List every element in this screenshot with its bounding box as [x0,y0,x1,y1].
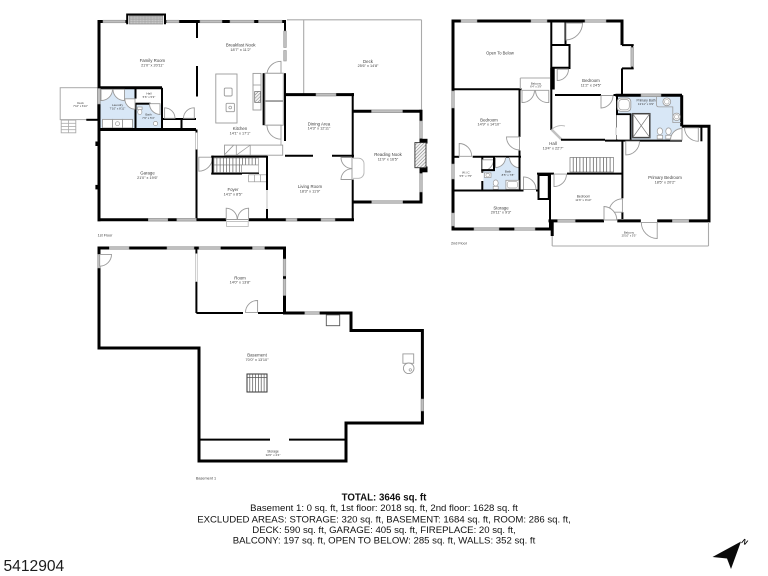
svg-text:7'10" x 8'11": 7'10" x 8'11" [110,107,126,111]
svg-text:BALCONY: 197 sq. ft, OPEN TO B: BALCONY: 197 sq. ft, OPEN TO BELOW: 285 … [233,536,536,547]
svg-text:13'11" x 9'9": 13'11" x 9'9" [638,102,654,106]
svg-text:Foyer: Foyer [227,187,239,192]
svg-text:5'6" x 5'3": 5'6" x 5'3" [143,95,156,99]
svg-text:21'0" x 19'6": 21'0" x 19'6" [137,176,158,180]
svg-text:20'11" x 9'3": 20'11" x 9'3" [491,211,512,215]
svg-text:14'3" x 12'11": 14'3" x 12'11" [308,127,331,131]
svg-text:25'6" x 14'8": 25'6" x 14'8" [358,64,379,68]
svg-text:1st Floor: 1st Floor [98,234,114,238]
svg-text:Basement 1: Basement 1 [196,476,216,480]
svg-text:EXCLUDED AREAS: STORAGE: 320 s: EXCLUDED AREAS: STORAGE: 320 sq. ft, BAS… [197,514,571,525]
svg-text:8'5" x 7'8": 8'5" x 7'8" [502,173,515,177]
svg-text:TOTAL: 3646 sq. ft: TOTAL: 3646 sq. ft [342,492,427,503]
svg-text:70'0" x 13'10": 70'0" x 13'10" [246,358,270,362]
svg-text:14'0" x 13'8": 14'0" x 13'8" [230,281,251,285]
svg-text:Basement 1: 0 sq. ft, 1st floo: Basement 1: 0 sq. ft, 1st floor: 2018 sq… [250,503,518,514]
svg-text:Living Room: Living Room [298,184,323,189]
svg-text:11'6" x 9'10": 11'6" x 9'10" [575,198,591,202]
svg-text:Reading Nook: Reading Nook [374,152,402,157]
svg-text:Garage: Garage [140,171,155,176]
svg-text:32'0" x 4'4": 32'0" x 4'4" [266,453,281,457]
svg-text:18'3" x 11'9": 18'3" x 11'9" [300,189,321,193]
svg-text:18'5" x 20'2": 18'5" x 20'2" [655,180,676,184]
svg-text:Breakfast Nook: Breakfast Nook [226,43,257,48]
svg-text:18'7" x 11'2": 18'7" x 11'2" [230,48,251,52]
svg-text:14'9" x 14'10": 14'9" x 14'10" [478,123,502,127]
svg-text:7'6" x 5'3": 7'6" x 5'3" [142,116,155,120]
svg-text:6'4" x 3'9": 6'4" x 3'9" [530,85,542,89]
svg-text:5412904: 5412904 [4,558,65,575]
svg-text:21'0" x 20'11": 21'0" x 20'11" [141,63,164,67]
svg-text:2nd Floor: 2nd Floor [451,242,468,246]
svg-text:13'4" x 22'7": 13'4" x 22'7" [543,146,564,150]
svg-text:DECK: 590 sq. ft, GARAGE: 405: DECK: 590 sq. ft, GARAGE: 405 sq. ft, FI… [252,525,515,536]
svg-text:Room: Room [234,275,246,280]
svg-text:Basement: Basement [247,353,267,358]
svg-text:Primary Bedroom: Primary Bedroom [648,175,682,180]
svg-text:11'2" x 24'5": 11'2" x 24'5" [581,83,602,87]
svg-text:Hall: Hall [549,141,557,146]
svg-text:11'9" x 16'5": 11'9" x 16'5" [378,157,399,161]
svg-text:Family Room: Family Room [140,58,166,63]
svg-text:Storage: Storage [493,205,509,210]
svg-text:14'1" x 17'1": 14'1" x 17'1" [230,131,251,135]
svg-text:5'5" x 7'5": 5'5" x 7'5" [459,174,472,178]
svg-text:Open To Below: Open To Below [486,50,514,55]
svg-text:Deck: Deck [363,59,374,64]
svg-text:Dining Area: Dining Area [308,121,331,126]
svg-text:7'10" x 6'10": 7'10" x 6'10" [73,104,88,108]
svg-text:Kitchen: Kitchen [233,126,248,131]
svg-text:Bedroom: Bedroom [582,78,600,83]
svg-text:Bedroom: Bedroom [480,117,498,122]
svg-text:25'10" x 5'5": 25'10" x 5'5" [622,233,637,237]
svg-text:14'2" x 8'5": 14'2" x 8'5" [224,192,243,196]
